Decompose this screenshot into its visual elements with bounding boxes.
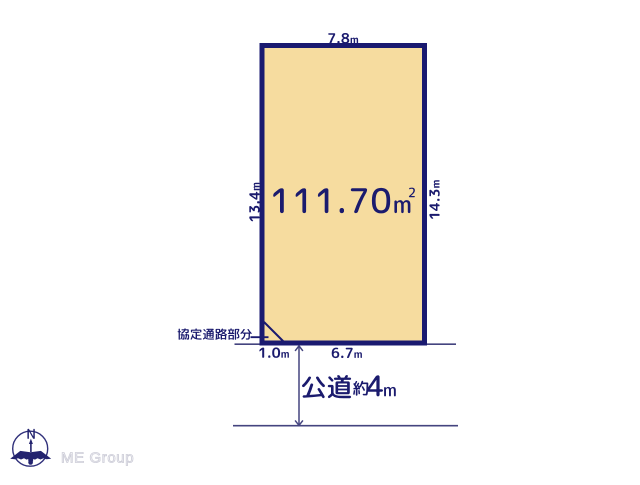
svg-text:ME Group: ME Group <box>61 449 134 466</box>
